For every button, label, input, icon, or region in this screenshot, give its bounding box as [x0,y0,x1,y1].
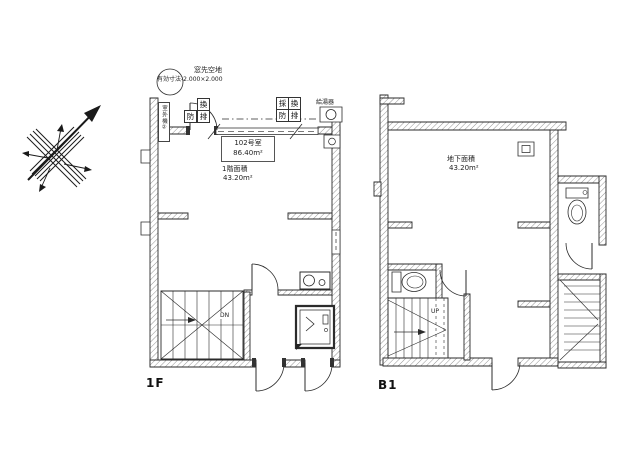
symbol-smoke: 排 [197,110,210,123]
stair-direction-up: UP [431,308,439,315]
wall-corridor-1f [244,292,250,360]
wall-toilet-right-b1 [436,264,442,298]
toilet-bowl-icon [568,200,586,224]
wall-annex-stair-right-b1 [600,274,606,368]
water-heater-label: 給湯器 [316,99,334,106]
symbol-fireproof: 防 [184,110,197,123]
compass-band-ne [30,127,84,181]
wall-bottom-b-b1 [518,358,558,366]
floor-area-label-1f: 1階面積 [222,165,247,173]
partition-kitchen-1f [278,290,332,295]
wall-stub-right-1f [288,213,332,219]
floor-title-b1: B1 [378,378,398,392]
compass-minor-arrows [22,124,92,192]
wall-annex-stair-top-b1 [558,274,606,280]
exterior-door-left-1f [256,363,284,391]
area-value-b1: 43.20m² [449,164,479,172]
wall-annex-toilet-right-b1 [599,176,606,245]
annex-toilet-b1 [566,188,592,269]
corner-meter-box-1f [324,135,340,148]
kitchen-sink-icon [304,275,315,286]
room-total-area: 86.40m² [225,149,271,159]
staircase-1f [161,291,243,359]
open-space-dimensions: 有効寸法-2.000×2.000 [157,76,223,83]
wall-top-b1 [388,122,566,130]
wall-stub-left-b1 [388,222,412,228]
interior-door-1f [252,264,278,290]
toilet-door-b1 [440,270,466,296]
water-heater-symbol-1f [320,107,342,122]
staircase-b1 [388,298,448,358]
stair-direction-dn: DN [220,312,229,319]
wall-cap-topleft-b1 [380,98,404,104]
wall-bottom-a-b1 [383,358,492,366]
corner-box-b1 [518,142,534,156]
wall-corridor-b1 [464,294,470,360]
wall-left-1f [150,98,158,366]
floorplan-b1 [374,95,606,390]
toilet-bowl-icon [402,273,426,292]
wall-bottom-a-1f [150,360,256,367]
compass-band-nw [27,129,86,187]
floorplan-1f [141,69,342,391]
exterior-door-b1 [492,362,520,390]
floor-plan-drawing: 窓先空地 有効寸法-2.000×2.000 室外機② 換 防 排 採 換 防 排… [0,0,618,473]
toilet-room-b1 [392,270,466,296]
room-info-box: 102号室 86.40m² [221,136,275,162]
floor-title-1f: 1F [146,376,165,390]
annex-staircase-b1 [560,280,600,360]
north-arrow-compass [22,105,101,192]
room-number: 102号室 [225,139,271,149]
symbol-grid-smoke: 排 [288,109,301,122]
floor-plan-linework [0,0,618,473]
wall-left-b1 [380,95,388,365]
annex-toilet-door [566,243,592,269]
toilet-tank [392,272,401,292]
kitchen-counter-1f [300,272,330,289]
wall-right-b1 [550,130,558,365]
area-label-b1: 地下面積 [447,155,475,163]
wall-stub-right-upper-b1 [518,222,550,228]
wall-step-left-b1 [374,182,381,196]
outer-walls-b1 [374,95,606,368]
wall-stub-left-1f [158,213,188,219]
wall-annex-stair-bottom-b1 [558,362,606,368]
open-space-note: 窓先空地 [194,66,222,74]
outdoor-unit-label: 室外機② [158,102,170,142]
kitchen-faucet-icon [319,280,325,286]
window-right-1f [332,230,340,254]
wall-toilet-top-b1 [388,264,442,270]
exterior-door-right-1f [305,363,332,391]
wall-stub-right-lower-b1 [518,301,550,307]
left-wall-meters-1f [141,150,150,235]
floor-area-value-1f: 43.20m² [223,174,253,182]
bathroom-1f [296,306,334,350]
